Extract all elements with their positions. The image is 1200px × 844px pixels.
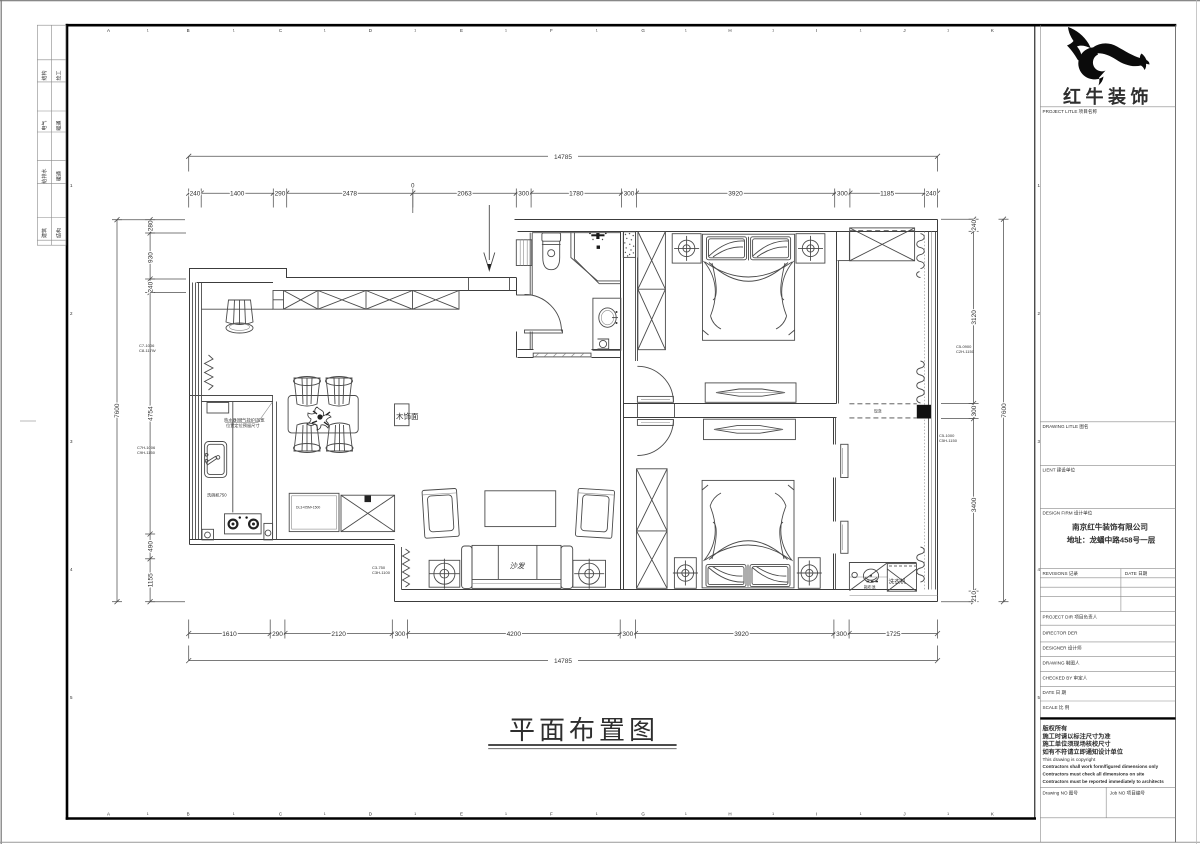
svg-text:1610: 1610 (222, 631, 237, 638)
svg-text:C2H-1150: C2H-1150 (956, 349, 975, 354)
svg-text:2063: 2063 (457, 191, 472, 198)
svg-text:7600: 7600 (1001, 403, 1008, 418)
svg-text:电气: 电气 (41, 121, 48, 131)
svg-text:J: J (903, 812, 905, 817)
svg-text:7600: 7600 (114, 403, 121, 418)
svg-text:地址：龙蟠中路458号一层: 地址：龙蟠中路458号一层 (1067, 535, 1156, 545)
svg-text:1: 1 (324, 812, 326, 816)
svg-text:B: B (187, 28, 190, 33)
svg-text:K: K (991, 812, 994, 817)
svg-text:建筑: 建筑 (41, 228, 48, 238)
svg-text:210: 210 (971, 591, 978, 602)
svg-text:G: G (641, 28, 645, 33)
svg-text:1: 1 (685, 812, 687, 816)
svg-text:F: F (550, 28, 553, 33)
svg-text:2120: 2120 (331, 631, 346, 638)
svg-text:290: 290 (275, 191, 286, 198)
svg-text:DRAWING 制图人: DRAWING 制图人 (1043, 660, 1080, 667)
svg-text:300: 300 (624, 191, 635, 198)
svg-text:B: B (187, 812, 190, 817)
svg-text:300: 300 (622, 631, 633, 638)
svg-text:240: 240 (147, 281, 154, 292)
svg-text:1: 1 (596, 812, 598, 816)
svg-text:Job NO 项目编号: Job NO 项目编号 (1110, 790, 1146, 797)
svg-text:DRAWING LITLE 图名: DRAWING LITLE 图名 (1043, 423, 1089, 430)
svg-text:1: 1 (947, 29, 949, 33)
svg-text:LIENT 建设单位: LIENT 建设单位 (1043, 467, 1076, 474)
svg-text:3400: 3400 (971, 497, 978, 512)
svg-text:1725: 1725 (886, 631, 901, 638)
svg-text:版权所有: 版权所有 (1042, 725, 1068, 733)
svg-text:3120: 3120 (971, 310, 978, 325)
svg-text:1: 1 (324, 29, 326, 33)
svg-text:红牛装饰: 红牛装饰 (1063, 86, 1153, 107)
svg-text:K: K (991, 28, 994, 33)
svg-text:H: H (728, 28, 731, 33)
svg-text:J: J (903, 28, 905, 33)
svg-text:C8-117W: C8-117W (139, 348, 156, 353)
svg-text:DIRECTOR DER: DIRECTOR DER (1043, 631, 1079, 636)
svg-text:DL3+05M+1500: DL3+05M+1500 (296, 506, 320, 510)
svg-text:1155: 1155 (147, 573, 154, 587)
svg-text:DESIGNER 设计师: DESIGNER 设计师 (1043, 645, 1082, 652)
svg-text:位置定位预留尺寸: 位置定位预留尺寸 (226, 422, 260, 429)
svg-text:1: 1 (505, 29, 507, 33)
svg-text:绘工: 绘工 (55, 70, 62, 80)
svg-text:REVISIONS 记录: REVISIONS 记录 (1043, 570, 1079, 576)
svg-text:300: 300 (971, 405, 978, 416)
svg-text:1: 1 (233, 29, 235, 33)
svg-text:300: 300 (836, 631, 847, 638)
svg-text:如有不符请立即通知设计单位: 如有不符请立即通知设计单位 (1043, 748, 1124, 756)
svg-text:E: E (460, 28, 463, 33)
svg-text:1: 1 (414, 812, 416, 816)
svg-text:1: 1 (772, 29, 774, 33)
svg-text:2478: 2478 (343, 191, 358, 198)
svg-text:G: G (641, 812, 645, 817)
svg-text:1: 1 (505, 812, 507, 816)
svg-text:PROJECT LITLE 项目名称: PROJECT LITLE 项目名称 (1043, 108, 1098, 115)
svg-text:洗碗机750: 洗碗机750 (207, 491, 227, 498)
svg-text:300: 300 (837, 191, 848, 198)
svg-text:C3H-1100: C3H-1100 (372, 570, 391, 575)
svg-text:施工单位须现场核校尺寸: 施工单位须现场核校尺寸 (1043, 740, 1112, 748)
svg-text:Contractors must check all dim: Contractors must check all dimensions on… (1043, 772, 1145, 777)
svg-text:木饰面: 木饰面 (396, 411, 419, 421)
svg-text:4754: 4754 (147, 406, 154, 421)
svg-text:300: 300 (395, 631, 406, 638)
svg-text:平面布置图: 平面布置图 (509, 715, 659, 745)
svg-text:C5H-1150: C5H-1150 (939, 438, 958, 443)
svg-text:290: 290 (272, 631, 283, 638)
svg-text:240: 240 (971, 219, 978, 230)
svg-text:C9H-1150: C9H-1150 (137, 450, 156, 455)
svg-text:暖通: 暖通 (55, 171, 62, 181)
svg-text:结构: 结构 (55, 228, 62, 238)
svg-text:280: 280 (147, 220, 154, 231)
svg-text:1: 1 (772, 812, 774, 816)
svg-text:This drawing is copyright: This drawing is copyright (1043, 757, 1096, 763)
svg-text:4200: 4200 (507, 631, 522, 638)
svg-text:1: 1 (947, 812, 949, 816)
svg-text:CHECKED BY 审定人: CHECKED BY 审定人 (1043, 675, 1088, 682)
svg-text:1: 1 (147, 812, 149, 816)
svg-text:1: 1 (147, 29, 149, 33)
svg-text:240: 240 (926, 191, 937, 198)
svg-text:暖通: 暖通 (55, 121, 62, 131)
svg-text:1400: 1400 (230, 191, 245, 198)
svg-text:14785: 14785 (554, 154, 572, 161)
svg-text:930: 930 (147, 252, 154, 263)
svg-text:E: E (460, 812, 463, 817)
svg-text:沙发: 沙发 (510, 562, 526, 571)
svg-text:DESIGN FIRM 设计单位: DESIGN FIRM 设计单位 (1043, 510, 1093, 517)
svg-text:1: 1 (685, 29, 687, 33)
svg-text:3920: 3920 (728, 191, 743, 198)
svg-text:A: A (107, 812, 110, 817)
svg-text:1: 1 (596, 29, 598, 33)
svg-text:Contractors shall work form/fi: Contractors shall work form/figured dime… (1043, 764, 1159, 769)
svg-text:3920: 3920 (734, 631, 749, 638)
svg-text:H: H (728, 812, 731, 817)
svg-text:Contractors must be reported i: Contractors must be reported immediately… (1043, 779, 1165, 784)
svg-text:14785: 14785 (554, 658, 572, 665)
svg-text:490: 490 (147, 541, 154, 552)
svg-text:F: F (550, 812, 553, 817)
svg-text:拖布池: 拖布池 (864, 585, 876, 590)
svg-text:施工时请以标注尺寸为准: 施工时请以标注尺寸为准 (1043, 732, 1112, 740)
svg-text:PROJECT DIR 项目负责人: PROJECT DIR 项目负责人 (1043, 614, 1098, 621)
svg-text:I: I (816, 28, 817, 33)
svg-text:结构: 结构 (41, 70, 48, 80)
svg-text:300: 300 (518, 191, 529, 198)
svg-text:1: 1 (414, 29, 416, 33)
svg-text:洗衣机: 洗衣机 (889, 578, 907, 586)
svg-text:1: 1 (860, 29, 862, 33)
svg-text:1780: 1780 (569, 191, 584, 198)
svg-text:南京红牛装饰有限公司: 南京红牛装饰有限公司 (1072, 522, 1148, 532)
svg-text:1: 1 (860, 812, 862, 816)
svg-text:1185: 1185 (880, 191, 894, 198)
svg-text:A: A (107, 28, 110, 33)
svg-text:I: I (816, 812, 817, 817)
svg-text:现浇: 现浇 (874, 409, 882, 414)
svg-text:给排水: 给排水 (41, 169, 48, 184)
svg-text:SCALE 比 例: SCALE 比 例 (1043, 704, 1070, 711)
svg-text:1: 1 (233, 812, 235, 816)
svg-text:240: 240 (190, 191, 201, 198)
